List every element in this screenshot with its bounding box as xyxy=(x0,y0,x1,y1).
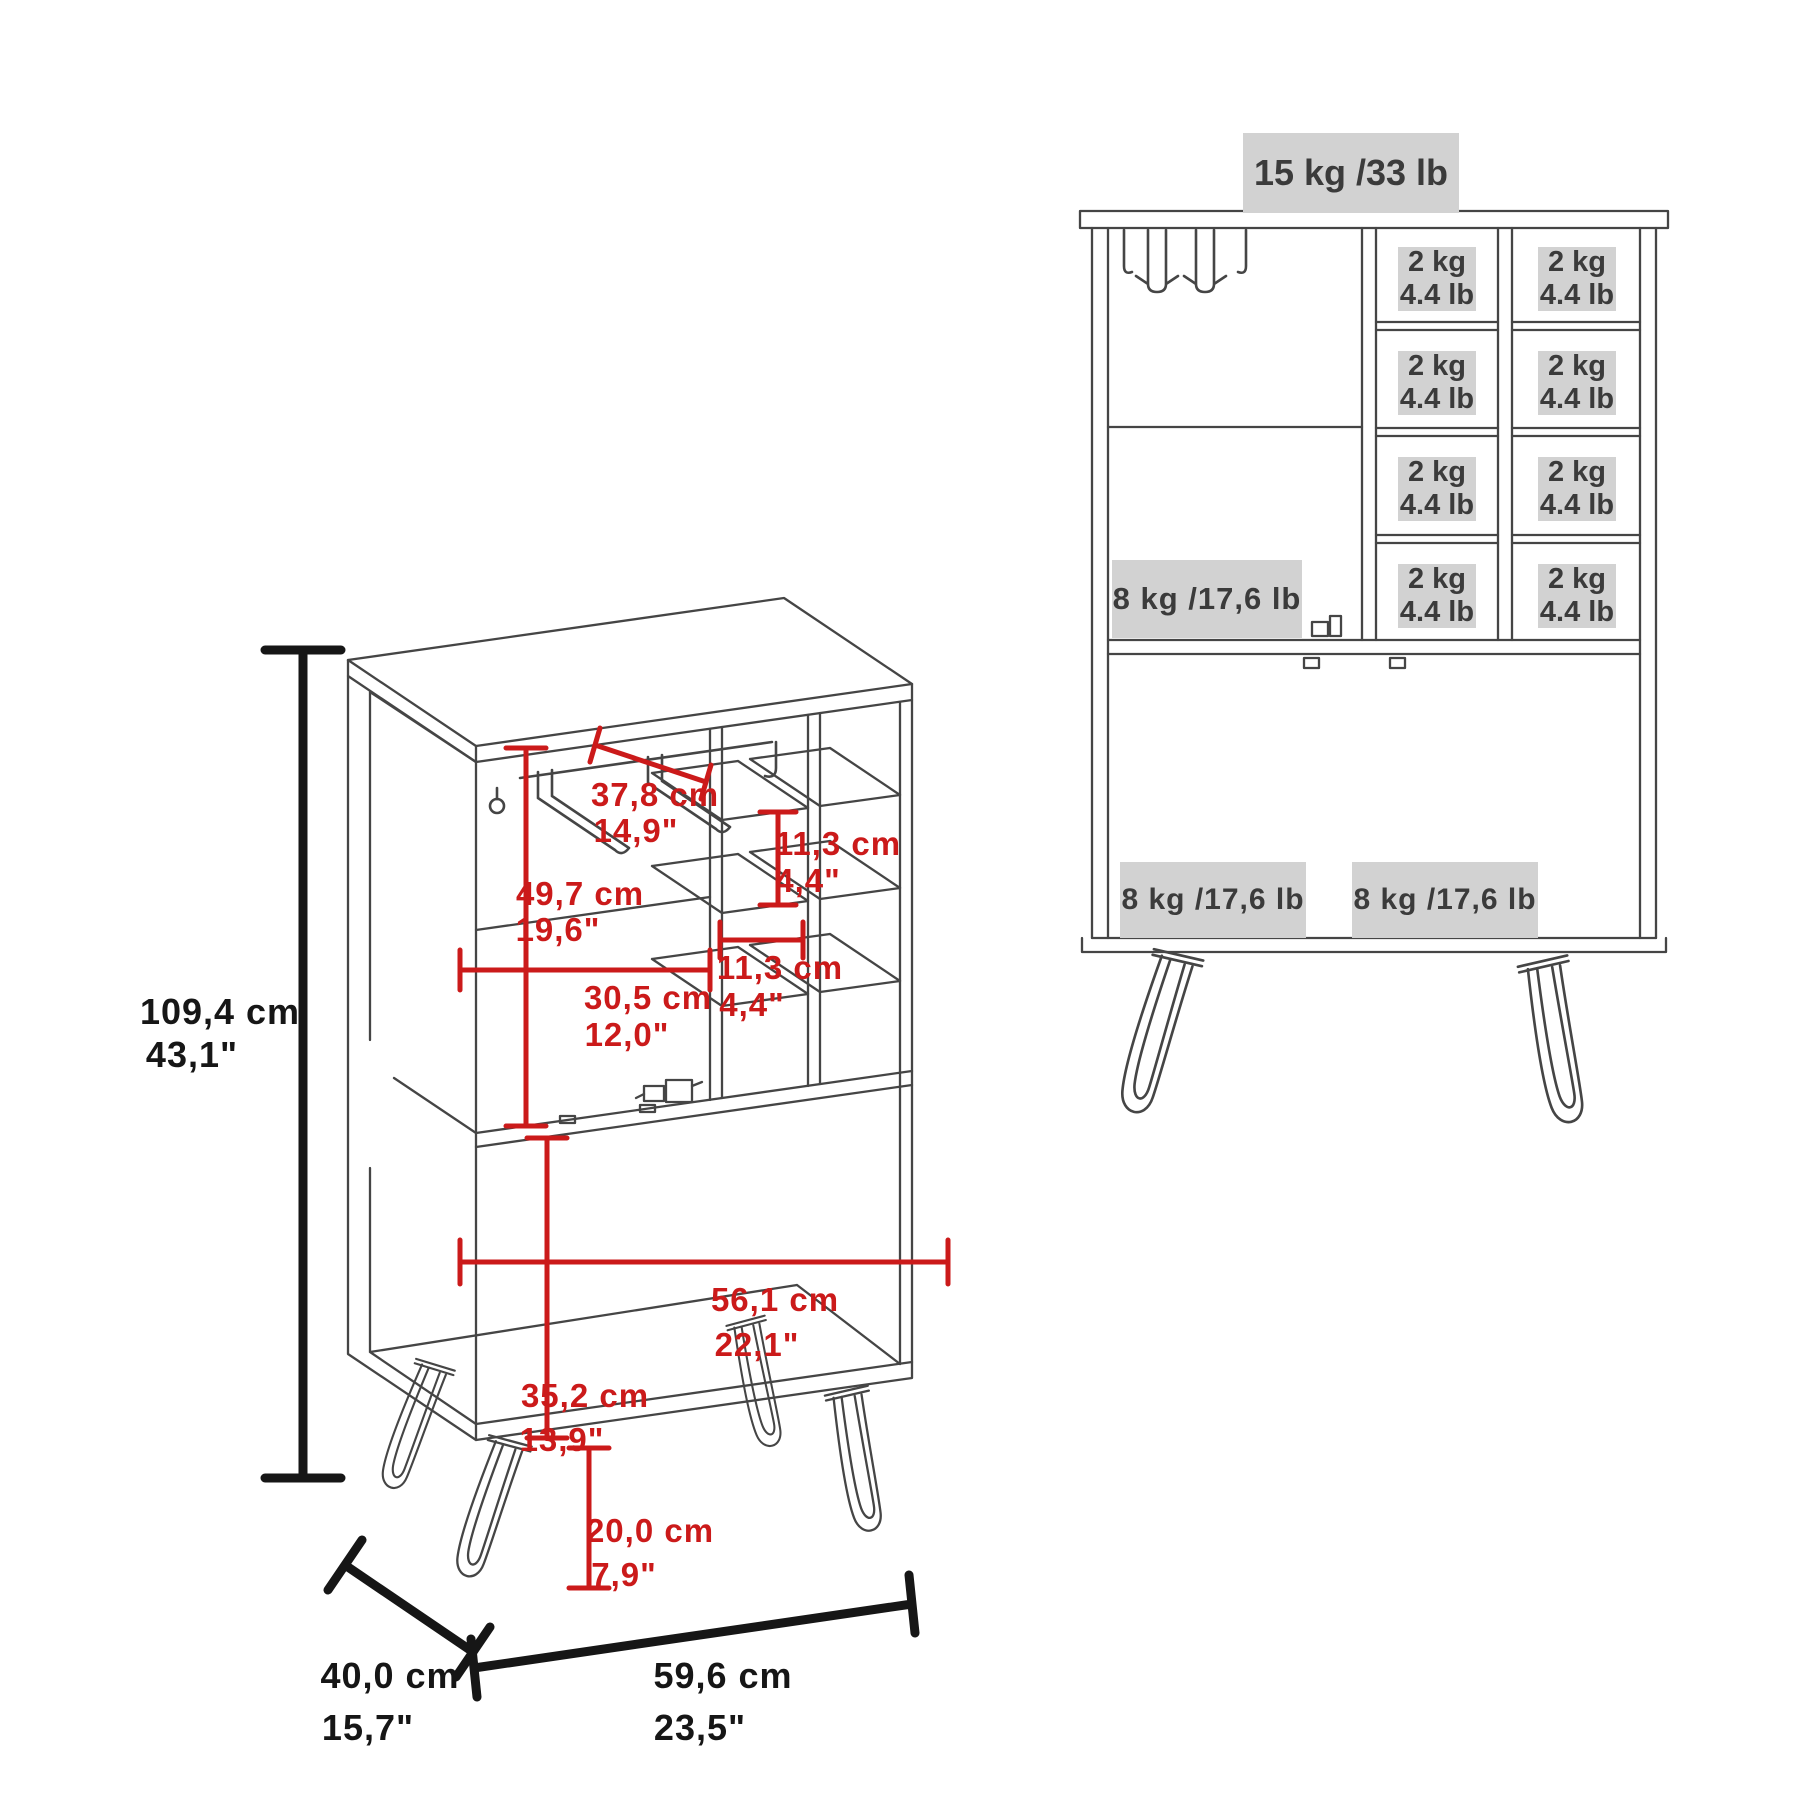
height-in: 43,1" xyxy=(146,1034,238,1076)
hairpin-legs-right-diagram xyxy=(1117,949,1604,1125)
front-middle-shelf xyxy=(1108,640,1640,654)
leg-height-in: 7,9" xyxy=(591,1556,657,1594)
cubby-capacity-badge: 2 kg 4.4 lb xyxy=(1398,564,1476,628)
cabinet-top-face xyxy=(348,598,912,746)
front-hinge-hardware xyxy=(1304,616,1405,668)
lower-width-in: 22,1" xyxy=(715,1326,800,1364)
cubby-capacity-badge: 2 kg 4.4 lb xyxy=(1538,564,1616,628)
right-cabinet-drawing xyxy=(1080,211,1668,1126)
rack-width-in: 14,9" xyxy=(594,812,679,850)
cubby-capacity-kg: 2 kg xyxy=(1548,350,1606,383)
lower-width-line xyxy=(460,1240,948,1284)
upper-height-cm: 49,7 cm xyxy=(516,875,644,913)
cubby-capacity-badge: 2 kg 4.4 lb xyxy=(1538,351,1616,415)
width-cm: 59,6 cm xyxy=(653,1655,792,1697)
cubby-capacity-lb: 4.4 lb xyxy=(1540,279,1614,312)
cubby-capacity-lb: 4.4 lb xyxy=(1540,489,1614,522)
rack-width-cm: 37,8 cm xyxy=(591,776,719,814)
interior-width-cm: 30,5 cm xyxy=(584,979,712,1017)
depth-in: 15,7" xyxy=(322,1707,414,1749)
cubby-capacity-kg: 2 kg xyxy=(1408,350,1466,383)
dimension-diagram: 37,8 cm 14,9" 49,7 cm 19,6" 11,3 cm 4,4"… xyxy=(0,0,1800,1800)
cubby-capacity-lb: 4.4 lb xyxy=(1400,279,1474,312)
cubby-capacity-badge: 2 kg 4.4 lb xyxy=(1538,457,1616,521)
door-capacity-badge-left: 8 kg /17,6 lb xyxy=(1120,862,1306,938)
leg-height-cm: 20,0 cm xyxy=(586,1512,714,1550)
depth-cm: 40,0 cm xyxy=(320,1655,459,1697)
cubby-height-cm: 11,3 cm xyxy=(775,825,901,863)
cubby-capacity-badge: 2 kg 4.4 lb xyxy=(1398,351,1476,415)
left-cabinet-drawing xyxy=(348,598,912,1584)
shelf-capacity-badge: 8 kg /17,6 lb xyxy=(1112,560,1302,638)
cubby-capacity-kg: 2 kg xyxy=(1408,456,1466,489)
cubby-capacity-badge: 2 kg 4.4 lb xyxy=(1398,457,1476,521)
height-dimension-line xyxy=(265,650,341,1478)
upper-height-in: 19,6" xyxy=(516,911,601,949)
cubby-capacity-lb: 4.4 lb xyxy=(1540,383,1614,416)
cubby-capacity-badge: 2 kg 4.4 lb xyxy=(1538,247,1616,311)
door-capacity-badge-right: 8 kg /17,6 lb xyxy=(1352,862,1538,938)
front-top-slab xyxy=(1080,211,1668,228)
lower-width-cm: 56,1 cm xyxy=(711,1281,839,1319)
front-glass-rack-icon xyxy=(1124,230,1246,292)
cubby-capacity-lb: 4.4 lb xyxy=(1400,489,1474,522)
cubby-capacity-lb: 4.4 lb xyxy=(1400,383,1474,416)
cubby-capacity-kg: 2 kg xyxy=(1548,246,1606,279)
cubby-capacity-kg: 2 kg xyxy=(1408,246,1466,279)
cubby-capacity-kg: 2 kg xyxy=(1548,456,1606,489)
lower-height-in: 13,9" xyxy=(520,1421,605,1459)
cubby-capacity-lb: 4.4 lb xyxy=(1540,596,1614,629)
width-in: 23,5" xyxy=(654,1707,746,1749)
hinge-hardware xyxy=(560,1080,702,1123)
height-cm: 109,4 cm xyxy=(140,991,300,1033)
lower-height-cm: 35,2 cm xyxy=(521,1377,649,1415)
cubby-width-in: 4,4" xyxy=(719,986,785,1024)
front-bottom-slab xyxy=(1082,938,1666,952)
cubby-capacity-kg: 2 kg xyxy=(1408,563,1466,596)
cubby-capacity-kg: 2 kg xyxy=(1548,563,1606,596)
cabinet-top-edge xyxy=(348,660,912,762)
cubby-capacity-lb: 4.4 lb xyxy=(1400,596,1474,629)
cubby-capacity-badge: 2 kg 4.4 lb xyxy=(1398,247,1476,311)
interior-width-in: 12,0" xyxy=(585,1016,670,1054)
cubby-width-cm: 11,3 cm xyxy=(717,949,843,987)
cubby-height-in: 4,4" xyxy=(775,862,841,900)
middle-shelf xyxy=(394,1071,912,1147)
top-capacity-badge: 15 kg /33 lb xyxy=(1243,133,1459,213)
